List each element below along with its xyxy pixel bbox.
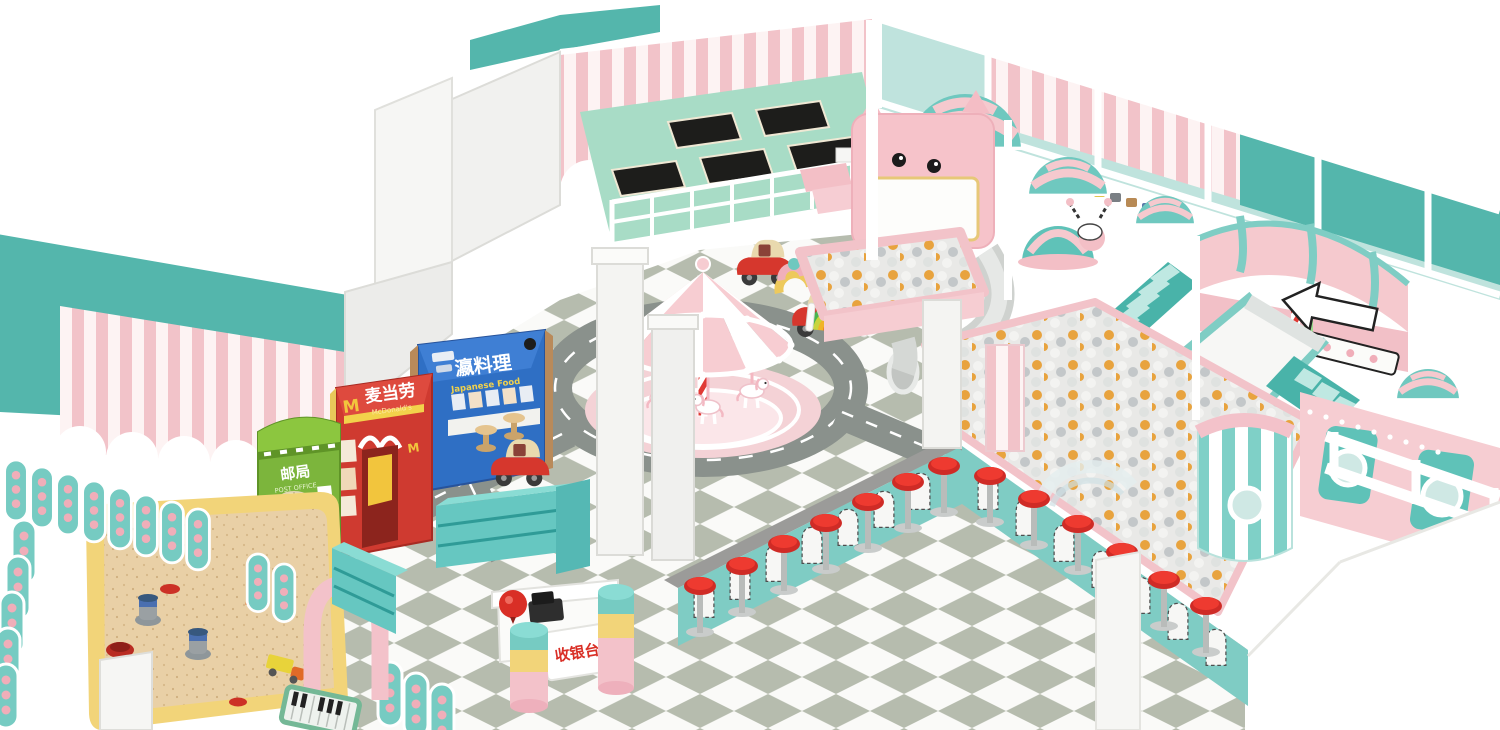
mcdonalds-door-slide — [368, 454, 392, 506]
white-ramp-block — [100, 652, 152, 730]
striped-pillar — [986, 345, 1024, 451]
trampoline-left-white-wall — [450, 52, 560, 262]
playground-render: 瀛料理 Japanese Food 麦当劳 M McDonald's M — [0, 0, 1500, 730]
menu-posters — [339, 439, 356, 516]
red-disc — [160, 584, 180, 594]
mcdonalds-side-logo: M — [407, 440, 421, 456]
striped-dome — [1397, 369, 1459, 400]
snail-character — [1018, 198, 1112, 270]
cashier-column-right — [598, 584, 634, 695]
shelf-end-column — [556, 479, 590, 574]
striped-tower — [1198, 420, 1292, 561]
scene-svg: 瀛料理 Japanese Food 麦当劳 M McDonald's M — [0, 0, 1500, 730]
cashier-column-left — [510, 622, 548, 713]
red-balloon — [499, 590, 527, 618]
red-disc — [229, 698, 247, 707]
white-pillar-front — [1096, 552, 1140, 730]
mcdonalds-logo: M — [342, 396, 362, 418]
mcdonalds-shop: 麦当劳 M McDonald's M — [330, 374, 432, 558]
